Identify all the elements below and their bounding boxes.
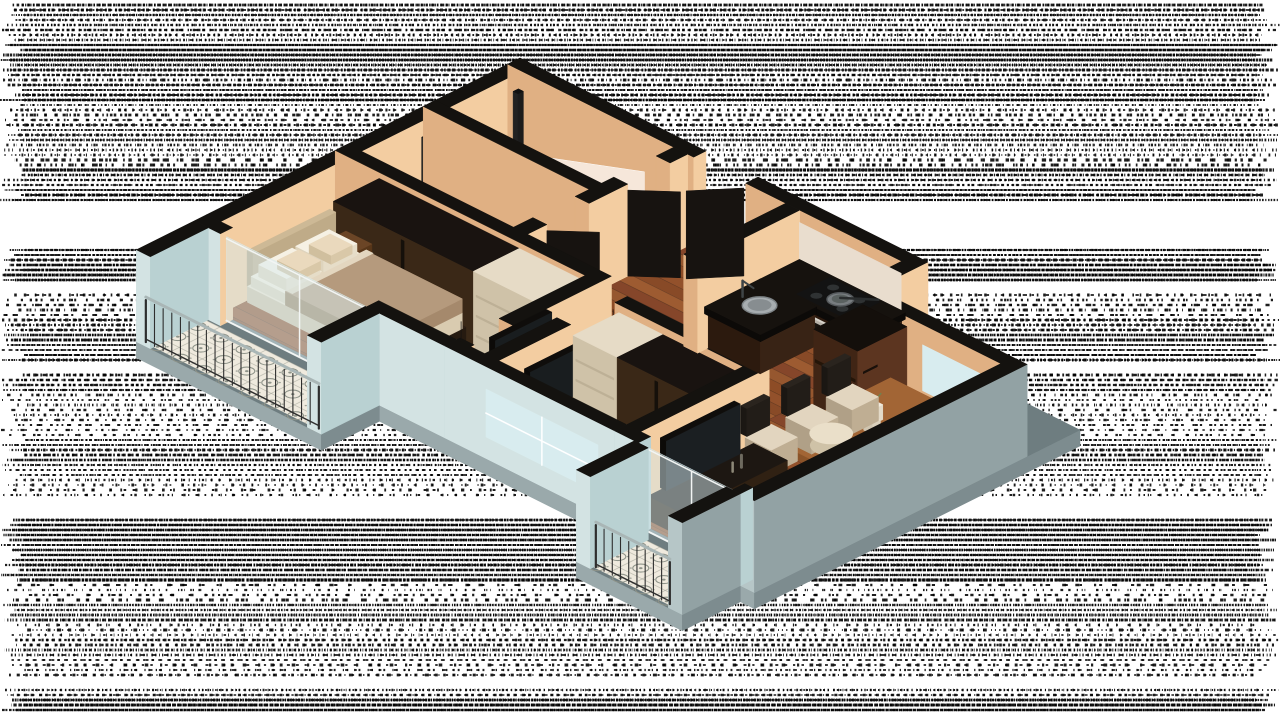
burner [827,284,839,290]
floorplan-3d-render [0,0,1280,718]
burner [836,306,848,312]
burner [810,293,822,299]
sink-basin-inner [748,299,772,311]
isometric-floorplan-svg [0,0,1280,718]
bath1-door [628,190,681,278]
shower-fixture-bath1 [513,89,523,148]
entry-door [686,188,744,279]
